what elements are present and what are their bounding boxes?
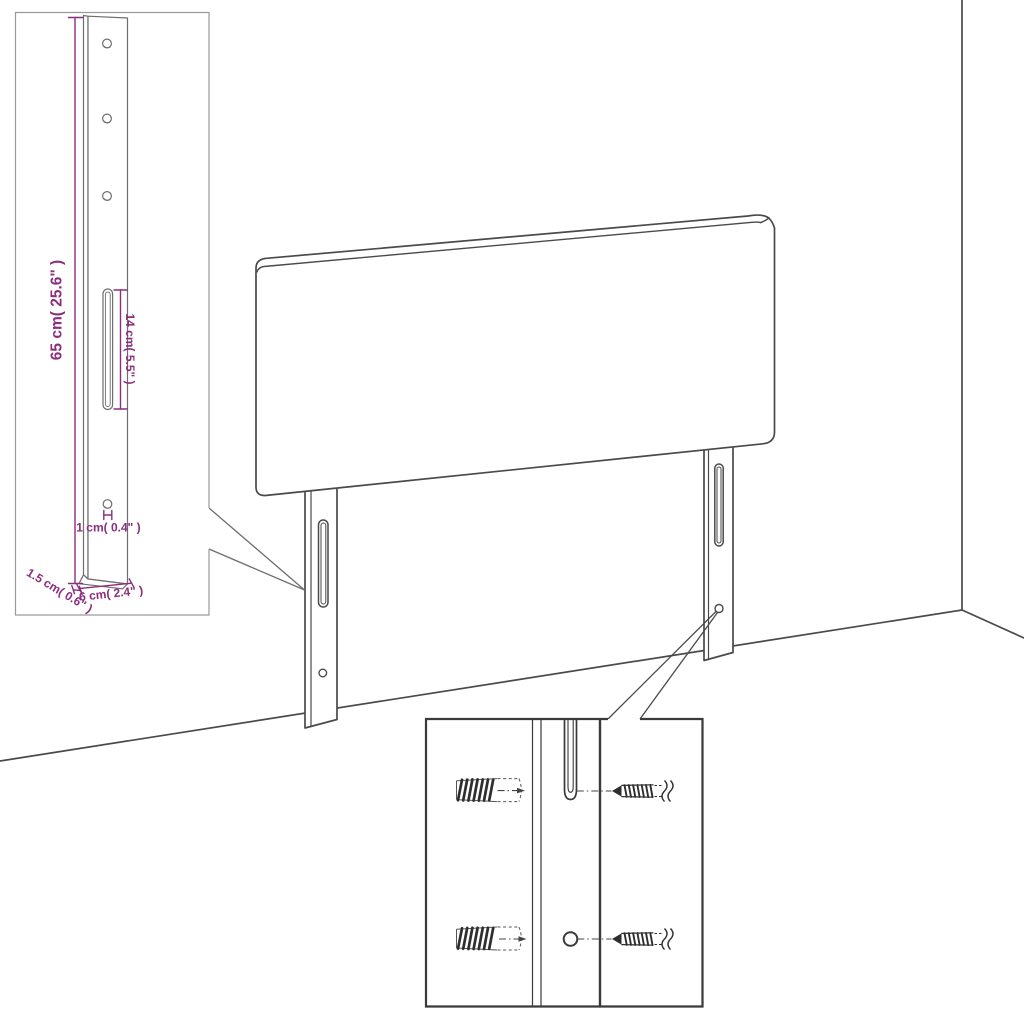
callout-line bbox=[608, 612, 716, 720]
right-leg-hole bbox=[715, 605, 723, 613]
callout-lines-right bbox=[608, 612, 718, 720]
callout-lines-left bbox=[209, 508, 305, 590]
right-mounting-leg bbox=[704, 444, 733, 661]
headboard-panel bbox=[256, 215, 775, 495]
detail-inset bbox=[426, 719, 703, 1007]
dim-height-label: 65 cm( 25.6" ) bbox=[49, 260, 66, 360]
profile-slot bbox=[103, 289, 113, 410]
assembly-diagram: 65 cm( 25.6" ) 14 cm( 5.5" ) 1 cm( 0.4" … bbox=[0, 0, 1024, 1024]
right-leg-slot bbox=[715, 464, 723, 546]
callout-line bbox=[640, 613, 718, 720]
diagram-canvas: 65 cm( 25.6" ) 14 cm( 5.5" ) 1 cm( 0.4" … bbox=[0, 0, 1024, 1024]
callout-line bbox=[209, 508, 305, 590]
dimension-inset: 65 cm( 25.6" ) 14 cm( 5.5" ) 1 cm( 0.4" … bbox=[16, 13, 210, 616]
left-mounting-leg bbox=[305, 488, 337, 729]
callout-line bbox=[209, 549, 305, 590]
left-leg-hole bbox=[319, 669, 327, 677]
left-leg-slot bbox=[319, 520, 329, 607]
leg-profile-side-face bbox=[84, 16, 89, 580]
dim-slot-label: 14 cm( 5.5" ) bbox=[123, 313, 137, 384]
dim-hole-label: 1 cm( 0.4" ) bbox=[76, 521, 140, 535]
